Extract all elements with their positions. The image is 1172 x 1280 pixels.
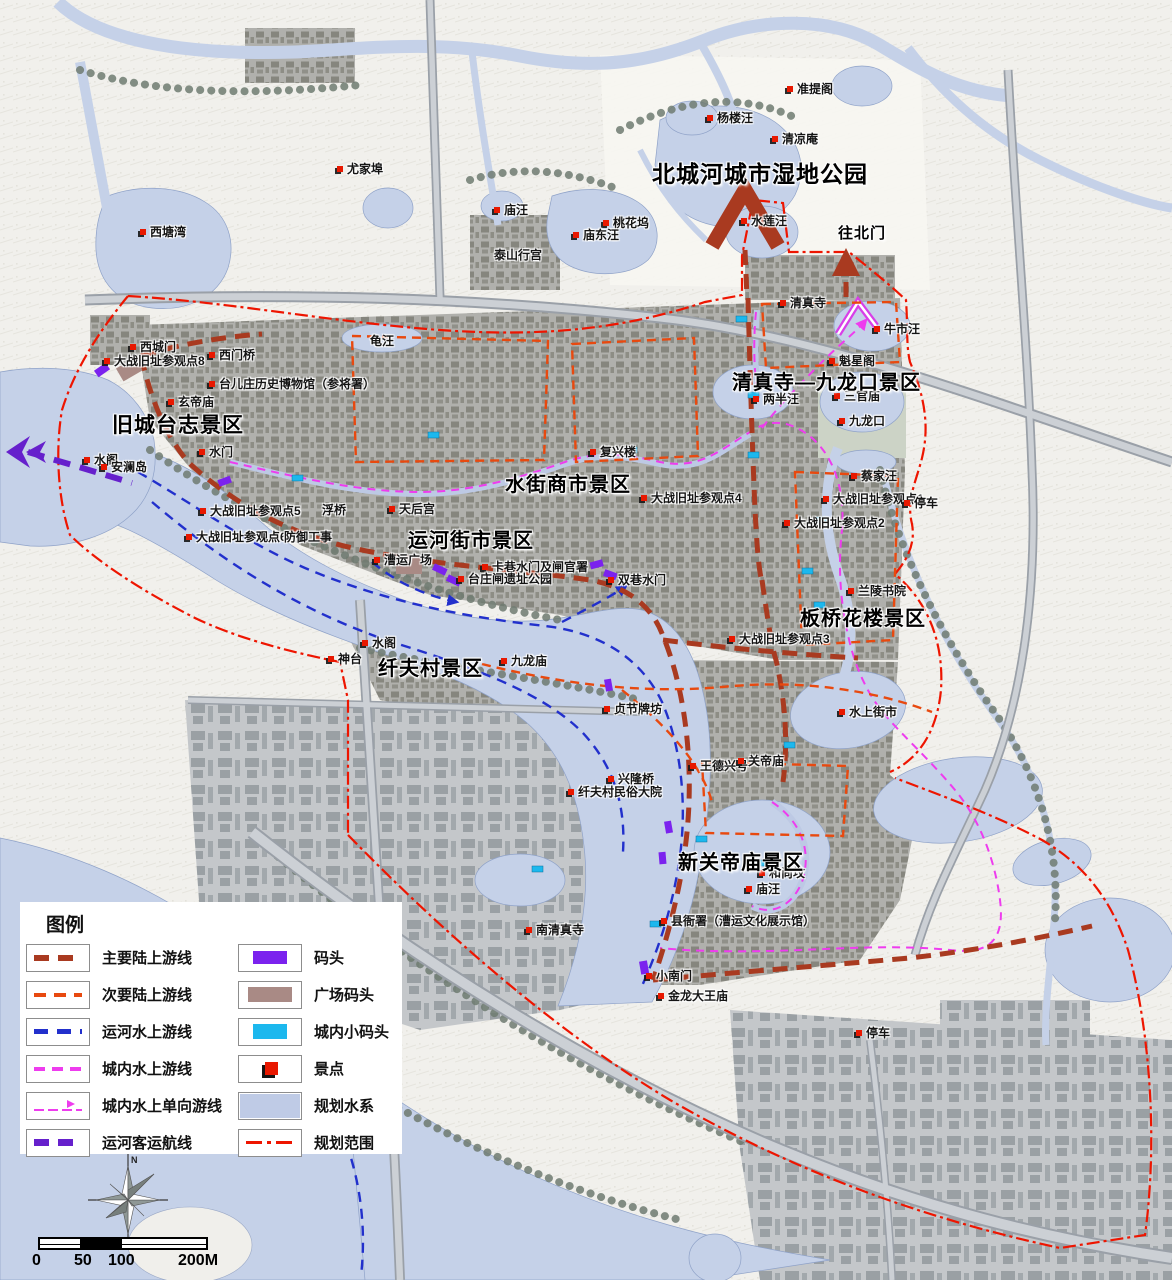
legend-item-label: 运河客运航线 (102, 1132, 192, 1153)
legend-swatch (253, 1024, 287, 1039)
scale-label-100: 100 (108, 1252, 135, 1270)
legend-swatch-box (26, 981, 90, 1009)
scale-bar (38, 1237, 208, 1250)
legend-swatch-box (238, 1129, 302, 1157)
legend-item-label: 城内水上单向游线 (102, 1095, 222, 1116)
legend-swatch (34, 993, 82, 997)
legend-swatch-box (238, 1092, 302, 1120)
legend-item: 城内水上单向游线 (20, 1087, 232, 1124)
legend-swatch (253, 951, 287, 964)
legend-swatch (34, 1139, 82, 1146)
compass-rose: N (86, 1152, 170, 1249)
legend-swatch-box (26, 1055, 90, 1083)
legend-swatch-box (238, 981, 302, 1009)
legend-swatch-box (26, 944, 90, 972)
legend-swatch (34, 1067, 82, 1071)
legend-item-label: 景点 (314, 1058, 344, 1079)
scale-label-0: 0 (32, 1252, 41, 1270)
legend-swatch (34, 1029, 82, 1034)
legend-item-label: 次要陆上游线 (102, 984, 192, 1005)
legend-item-label: 城内水上游线 (102, 1058, 192, 1079)
legend-item-label: 城内小码头 (314, 1021, 389, 1042)
legend-swatch-box (26, 1129, 90, 1157)
legend-swatch (34, 955, 82, 961)
legend-item: 码头 (232, 939, 400, 976)
compass-north-label: N (131, 1155, 138, 1165)
legend-item: 城内小码头 (232, 1013, 400, 1050)
legend-swatch (240, 1094, 300, 1118)
legend-item: 景点 (232, 1050, 400, 1087)
scale-label-50: 50 (74, 1252, 92, 1270)
legend-swatch-box (238, 1055, 302, 1083)
legend-swatch-box (238, 1018, 302, 1046)
legend-right-column: 码头 广场码头 城内小码头 (232, 939, 400, 1161)
legend-panel: 图例 主要陆上游线 次要陆上游线 (20, 902, 402, 1154)
legend-item-label: 码头 (314, 947, 344, 968)
scale-label-200: 200M (178, 1252, 218, 1270)
legend-swatch (246, 1141, 294, 1144)
legend-item: 次要陆上游线 (20, 976, 232, 1013)
legend-item: 城内水上游线 (20, 1050, 232, 1087)
legend-item-label: 广场码头 (314, 984, 374, 1005)
legend-swatch (34, 1100, 82, 1112)
legend-swatch-box (238, 944, 302, 972)
legend-item-label: 规划水系 (314, 1095, 374, 1116)
legend-item: 广场码头 (232, 976, 400, 1013)
legend-left-column: 主要陆上游线 次要陆上游线 运河水上游线 (20, 939, 232, 1161)
legend-swatch-box (26, 1092, 90, 1120)
legend-swatch (248, 987, 292, 1002)
legend-item: 运河水上游线 (20, 1013, 232, 1050)
legend-item-label: 运河水上游线 (102, 1021, 192, 1042)
legend-item-label: 主要陆上游线 (102, 947, 192, 968)
legend-swatch-box (26, 1018, 90, 1046)
legend-item: 规划范围 (232, 1124, 400, 1161)
legend-item: 规划水系 (232, 1087, 400, 1124)
legend-item: 主要陆上游线 (20, 939, 232, 976)
legend-title: 图例 (46, 910, 402, 937)
legend-swatch (265, 1062, 278, 1075)
tourist-planning-map: 准提阁 杨楼汪 清凉庵 尤家埠 西塘湾 庙汪 桃花坞 庙东汪 (0, 0, 1172, 1280)
legend-item-label: 规划范围 (314, 1132, 374, 1153)
